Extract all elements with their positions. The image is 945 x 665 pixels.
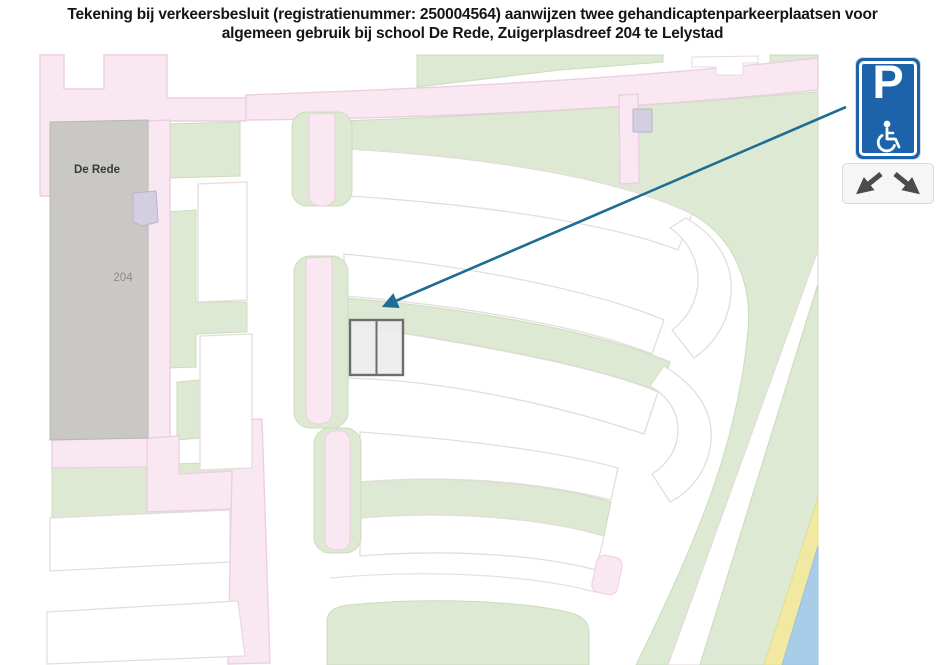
traffic-decision-drawing: { "title": { "line1": "Tekening bij verk… — [0, 0, 945, 665]
arrow-down-right-icon — [891, 170, 925, 198]
map-drawing: De Rede 204 — [0, 0, 945, 665]
parking-sign-p: P — [856, 55, 920, 109]
disabled-parking-sign: P — [842, 58, 938, 204]
arrow-down-left-icon — [851, 170, 885, 198]
building-label: De Rede — [74, 164, 120, 176]
parking-sign-board: P — [856, 58, 920, 159]
designated-parking-spaces — [350, 320, 403, 375]
direction-arrows-panel — [842, 163, 934, 204]
house-number-label: 204 — [113, 272, 133, 284]
small-building — [633, 109, 652, 132]
wheelchair-icon — [870, 118, 906, 154]
annex-building — [133, 191, 158, 226]
